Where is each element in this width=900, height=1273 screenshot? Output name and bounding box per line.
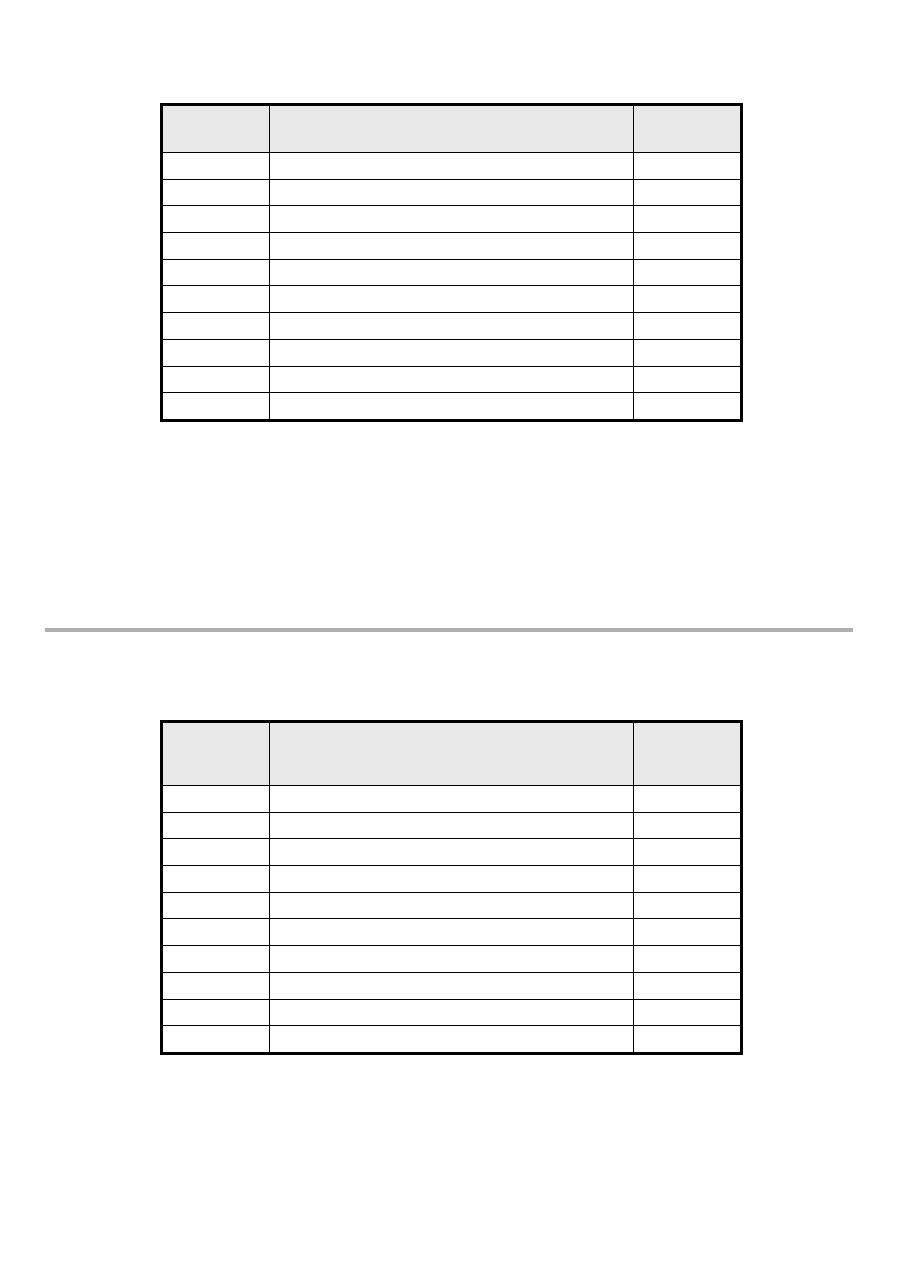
table-row — [162, 919, 742, 946]
table-cell — [162, 972, 270, 999]
table-row — [162, 812, 742, 839]
table-cell — [270, 1026, 634, 1054]
table-cell — [270, 972, 634, 999]
table-cell — [270, 206, 634, 233]
table-row — [162, 393, 742, 421]
table-cell — [162, 153, 270, 180]
table-cell — [162, 179, 270, 206]
table-header-cell — [634, 105, 742, 153]
table-row — [162, 313, 742, 340]
table-cell — [270, 812, 634, 839]
table-cell — [634, 179, 742, 206]
top-table — [160, 103, 740, 422]
table-header-cell — [270, 105, 634, 153]
document-page — [0, 0, 900, 1273]
table-cell — [270, 313, 634, 340]
table-cell — [270, 919, 634, 946]
table-cell — [162, 999, 270, 1026]
table-cell — [270, 393, 634, 421]
table-cell — [634, 393, 742, 421]
table-cell — [634, 206, 742, 233]
table-cell — [634, 153, 742, 180]
table-row — [162, 839, 742, 866]
table-row — [162, 972, 742, 999]
table-row — [162, 946, 742, 973]
table-header-row — [162, 105, 742, 153]
table-row — [162, 786, 742, 813]
table-cell — [634, 259, 742, 286]
table-row — [162, 339, 742, 366]
table-row — [162, 179, 742, 206]
table-cell — [270, 366, 634, 393]
table-cell — [270, 839, 634, 866]
table-cell — [162, 339, 270, 366]
table-row — [162, 1026, 742, 1054]
table-row — [162, 153, 742, 180]
table-cell — [634, 972, 742, 999]
table-cell — [270, 233, 634, 260]
table-cell — [162, 1026, 270, 1054]
table-cell — [270, 259, 634, 286]
table-cell — [634, 866, 742, 893]
table-cell — [162, 366, 270, 393]
table-cell — [634, 999, 742, 1026]
table-cell — [270, 339, 634, 366]
table-row — [162, 866, 742, 893]
top-table-body — [162, 153, 742, 421]
table-header-cell — [162, 722, 270, 786]
table-cell — [270, 786, 634, 813]
table-cell — [162, 892, 270, 919]
table-cell — [162, 206, 270, 233]
table-cell — [634, 892, 742, 919]
table-cell — [634, 1026, 742, 1054]
table-row — [162, 233, 742, 260]
table-cell — [162, 286, 270, 313]
table-cell — [634, 919, 742, 946]
table-cell — [634, 286, 742, 313]
table-cell — [270, 179, 634, 206]
table-cell — [270, 946, 634, 973]
table-row — [162, 892, 742, 919]
table-cell — [162, 393, 270, 421]
table-cell — [162, 313, 270, 340]
table-header-cell — [162, 105, 270, 153]
table-header-cell — [270, 722, 634, 786]
table-cell — [162, 233, 270, 260]
table-cell — [634, 313, 742, 340]
table-cell — [634, 366, 742, 393]
table-cell — [162, 786, 270, 813]
table-cell — [270, 999, 634, 1026]
table-cell — [270, 153, 634, 180]
table-cell — [634, 233, 742, 260]
bottom-table-grid — [160, 720, 743, 1055]
horizontal-rule — [45, 628, 853, 632]
table-cell — [162, 946, 270, 973]
table-row — [162, 999, 742, 1026]
table-cell — [162, 812, 270, 839]
table-row — [162, 206, 742, 233]
table-cell — [162, 839, 270, 866]
table-cell — [162, 259, 270, 286]
table-cell — [270, 892, 634, 919]
top-table-grid — [160, 103, 743, 422]
table-row — [162, 366, 742, 393]
table-cell — [270, 866, 634, 893]
table-cell — [634, 812, 742, 839]
bottom-table-body — [162, 786, 742, 1054]
table-cell — [162, 866, 270, 893]
table-cell — [634, 786, 742, 813]
table-header-row — [162, 722, 742, 786]
bottom-table — [160, 720, 740, 1055]
table-cell — [634, 839, 742, 866]
table-cell — [270, 286, 634, 313]
table-cell — [162, 919, 270, 946]
table-cell — [634, 946, 742, 973]
table-row — [162, 286, 742, 313]
table-row — [162, 259, 742, 286]
table-cell — [634, 339, 742, 366]
table-header-cell — [634, 722, 742, 786]
